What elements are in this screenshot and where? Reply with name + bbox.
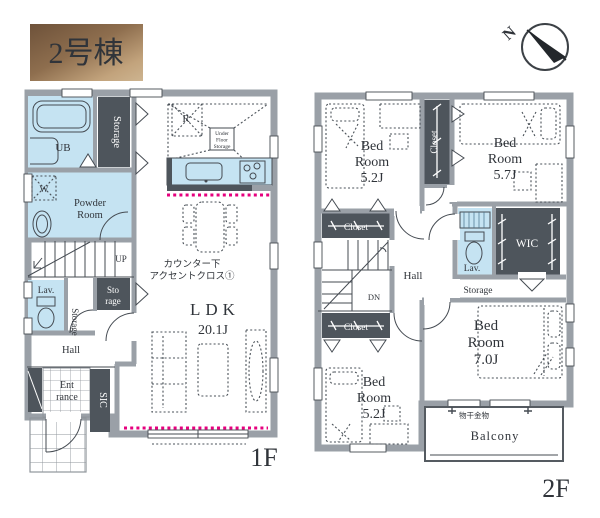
window <box>270 358 278 392</box>
bedroom-sw-label1: Bed <box>363 375 386 390</box>
stairs-up-label: UP <box>115 254 127 264</box>
pillow <box>541 108 556 139</box>
bed <box>326 104 364 188</box>
stairs-up <box>28 241 115 277</box>
chair <box>183 227 194 245</box>
entrance-door-gap <box>46 412 81 422</box>
window <box>566 304 574 322</box>
bedroom-se-door <box>423 302 450 329</box>
living-set <box>152 330 266 412</box>
closet-bottom-label: Closet <box>344 323 369 333</box>
closet-door-symbol <box>452 150 464 166</box>
tv-shape <box>249 341 263 401</box>
coffee-table <box>198 344 228 396</box>
floor2-label: 2F <box>542 474 569 503</box>
window <box>24 174 32 202</box>
washer-label: W <box>40 185 49 195</box>
blanket-fold <box>336 124 358 148</box>
window <box>566 348 574 366</box>
door-gap <box>450 214 460 240</box>
closet-door-symbol <box>136 152 148 174</box>
ldk-size-label: 20.1J <box>198 323 229 338</box>
floor2-plan: Bed Room 5.2J Bed Room 5.7J Closet Close… <box>314 92 574 503</box>
window <box>24 282 32 298</box>
window <box>566 126 574 158</box>
window <box>270 136 278 158</box>
chair <box>183 205 194 223</box>
bedroom-ne-label2: Room <box>488 152 522 167</box>
window <box>350 444 386 452</box>
closet-door-symbol <box>324 340 340 352</box>
blanket-fold <box>332 424 350 442</box>
entrance-label2: rance <box>56 392 78 403</box>
desk <box>380 104 420 128</box>
dining-table <box>196 202 224 252</box>
chair <box>226 227 237 245</box>
window <box>24 318 32 334</box>
hall-label: Hall <box>62 345 80 356</box>
badge-label: 2号棟 <box>49 37 124 70</box>
ufs-label: Under <box>215 131 229 137</box>
closet-door-symbol <box>136 103 148 125</box>
bedroom-sw-size: 5.2J <box>363 407 387 422</box>
balcony-label: Balcony <box>471 429 520 443</box>
ldk-label: LDK <box>190 300 240 319</box>
bedroom-nw-size: 5.2J <box>361 171 385 186</box>
pillow <box>548 311 560 337</box>
lavatory2-label: Lav. <box>464 264 481 274</box>
bedroom-ne-label1: Bed <box>494 136 517 151</box>
compass-icon: N <box>500 23 568 70</box>
powder-room-label2: Room <box>77 210 103 221</box>
window <box>130 89 162 97</box>
closet-top-label: Closet <box>344 223 369 233</box>
window <box>62 89 92 97</box>
closet-door-symbol <box>370 340 386 352</box>
bedroom-nw-label1: Bed <box>361 139 384 154</box>
refrigerator-label: R <box>182 113 190 125</box>
wic-door-symbol <box>520 279 544 291</box>
storage-box-label1: Sto <box>107 285 120 295</box>
floor1-plan: UB Storage Powder Room W R Under Floor S… <box>24 89 278 472</box>
bedroom-se-label2: Room <box>468 335 505 351</box>
bedroom-ne-door <box>426 187 444 205</box>
bedroom-nw-label2: Room <box>355 155 389 170</box>
closet-door-symbol <box>452 106 464 122</box>
blanket-fold <box>522 112 536 138</box>
dining-set <box>183 202 237 252</box>
window <box>314 126 322 152</box>
storage-top-label: Storage <box>111 116 122 148</box>
closet-door-symbol <box>324 199 340 211</box>
floorplan-page: 2号棟 N <box>0 0 600 518</box>
laundry-hardware-label: 物干金物 <box>459 410 489 420</box>
building-badge: 2号棟 <box>30 24 143 81</box>
bedroom-se-label1: Bed <box>474 318 499 334</box>
kitchen-counter <box>167 158 272 185</box>
closet-door-symbol <box>370 199 386 211</box>
compass-north-label: N <box>500 23 520 44</box>
stairs-down <box>322 240 392 311</box>
pillow <box>330 372 358 384</box>
closet-vertical-label: Closet <box>429 130 439 154</box>
door-gap <box>394 206 420 216</box>
wic-label: WIC <box>516 238 539 250</box>
accent-note-line2: アクセントクロス① <box>149 271 235 282</box>
chair <box>226 205 237 223</box>
accent-note-line1: カウンター下 <box>163 259 220 270</box>
hall2-label: Hall <box>404 270 423 282</box>
storage-box-label2: rage <box>105 296 121 306</box>
chair <box>514 172 531 190</box>
entrance-label1: Ent <box>60 380 74 391</box>
chair <box>390 134 408 149</box>
hall-ldk-door <box>106 313 134 341</box>
closet-door-symbol <box>136 283 148 305</box>
bedroom-sw-label2: Room <box>357 391 391 406</box>
bedroom-se-size: 7.0J <box>474 352 499 368</box>
counter-base-end <box>252 185 272 191</box>
floor1-label: 1F <box>250 443 277 472</box>
pillow <box>331 108 359 121</box>
kitchen-counter-end <box>167 158 172 185</box>
sofa <box>152 332 186 412</box>
storage-mid-label: Storage <box>70 308 80 336</box>
bedroom-ne-size: 5.7J <box>494 168 518 183</box>
ufs-label3: Storage <box>214 144 231 150</box>
window <box>366 92 412 100</box>
window <box>314 368 322 400</box>
bathroom-label: UB <box>55 142 70 154</box>
door-gap <box>447 185 457 202</box>
powder-room-label: Powder <box>74 198 107 209</box>
ceiling-diagonal <box>234 104 268 128</box>
desk <box>536 164 562 202</box>
sic-label: SIC <box>97 392 108 408</box>
window <box>270 243 278 269</box>
stairs-down-label: DN <box>368 292 380 302</box>
window <box>484 92 534 100</box>
lavatory-label: Lav. <box>38 286 55 296</box>
window <box>314 242 322 268</box>
porch-tile-floor <box>30 418 86 472</box>
desk <box>370 424 408 444</box>
bedroom-sw-door <box>394 313 422 341</box>
storage2-label: Storage <box>463 286 492 296</box>
pillow <box>548 343 560 369</box>
door-gap <box>424 295 450 305</box>
ufs-label2: Floor <box>216 138 228 144</box>
chair <box>384 406 400 421</box>
faucet-dot <box>205 180 208 183</box>
door-gap <box>450 279 460 298</box>
